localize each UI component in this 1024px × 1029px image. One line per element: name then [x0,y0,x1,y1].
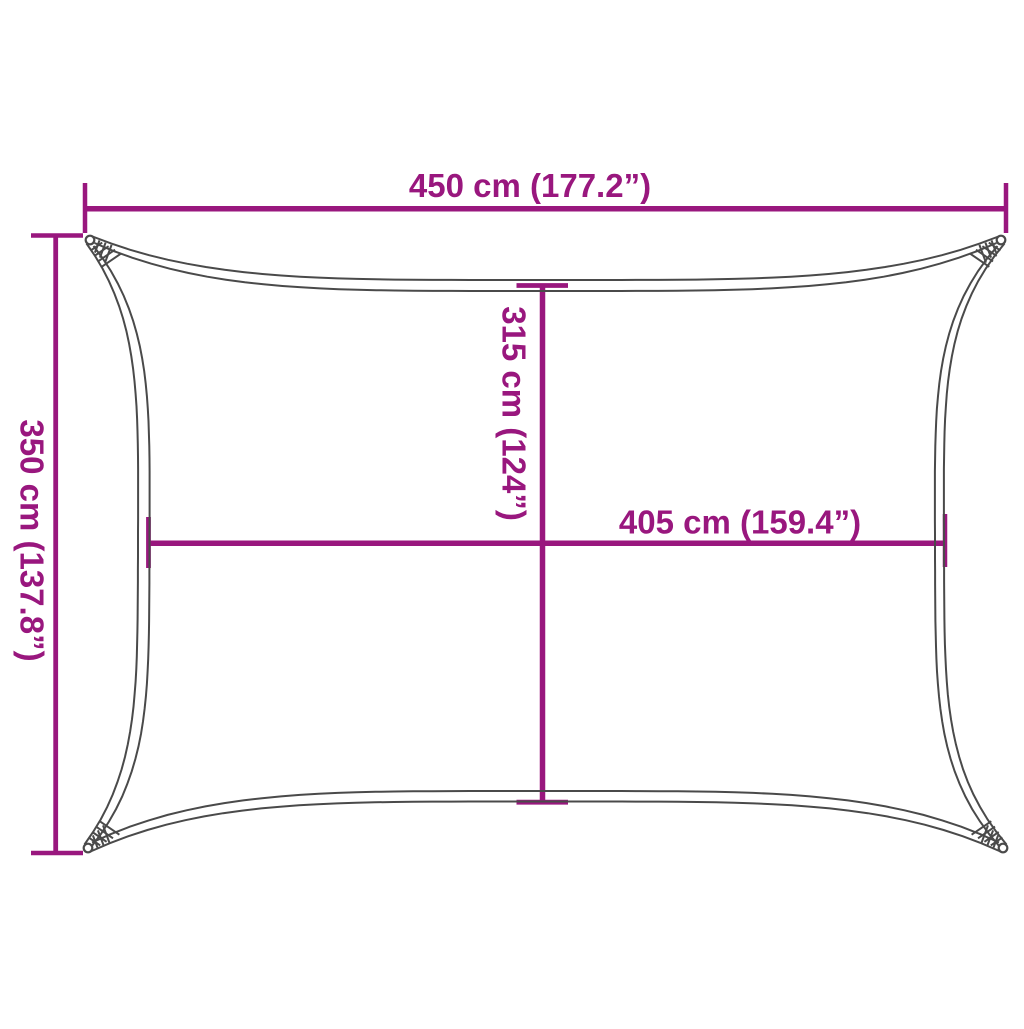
svg-text:315 cm (124”): 315 cm (124”) [496,306,533,521]
svg-text:350 cm (137.8”): 350 cm (137.8”) [14,419,51,661]
svg-text:450 cm (177.2”): 450 cm (177.2”) [409,167,651,204]
svg-text:405 cm (159.4”): 405 cm (159.4”) [619,504,861,541]
